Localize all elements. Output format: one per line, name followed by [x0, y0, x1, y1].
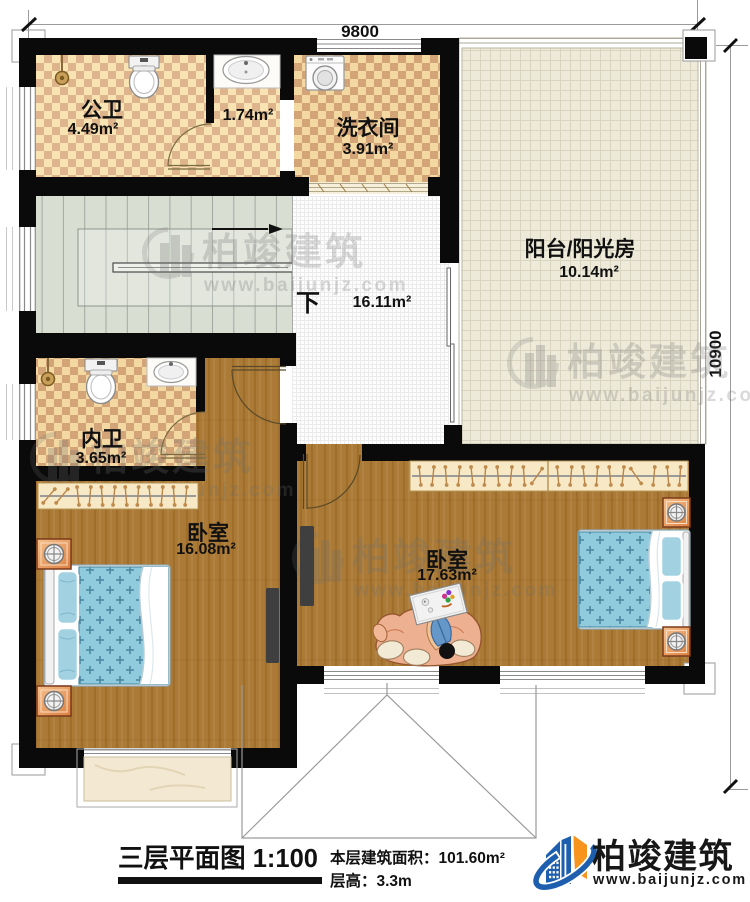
- svg-text:内卫: 内卫: [81, 427, 123, 451]
- svg-text:4.49m²: 4.49m²: [68, 121, 119, 138]
- svg-text:本层建筑面积：101.60m²: 本层建筑面积：101.60m²: [330, 848, 505, 867]
- svg-text:3.65m²: 3.65m²: [76, 450, 127, 467]
- svg-text:公卫: 公卫: [81, 99, 123, 122]
- svg-text:10.14m²: 10.14m²: [559, 264, 619, 281]
- svg-text:阳台/阳光房: 阳台/阳光房: [525, 237, 636, 261]
- svg-text:16.11m²: 16.11m²: [353, 294, 412, 311]
- svg-text:洗衣间: 洗衣间: [337, 116, 400, 140]
- svg-text:层高：3.3m: 层高：3.3m: [330, 871, 412, 890]
- svg-text:www.baijunjz.com: www.baijunjz.com: [592, 872, 747, 888]
- svg-text:下: 下: [296, 290, 320, 317]
- svg-text:柏竣建筑: 柏竣建筑: [592, 837, 734, 876]
- svg-text:3.91m²: 3.91m²: [343, 141, 394, 158]
- svg-text:三层平面图 1:100: 三层平面图 1:100: [118, 843, 318, 873]
- svg-text:17.63m²: 17.63m²: [417, 567, 477, 584]
- svg-text:16.08m²: 16.08m²: [176, 541, 236, 558]
- svg-text:1.74m²: 1.74m²: [223, 107, 274, 124]
